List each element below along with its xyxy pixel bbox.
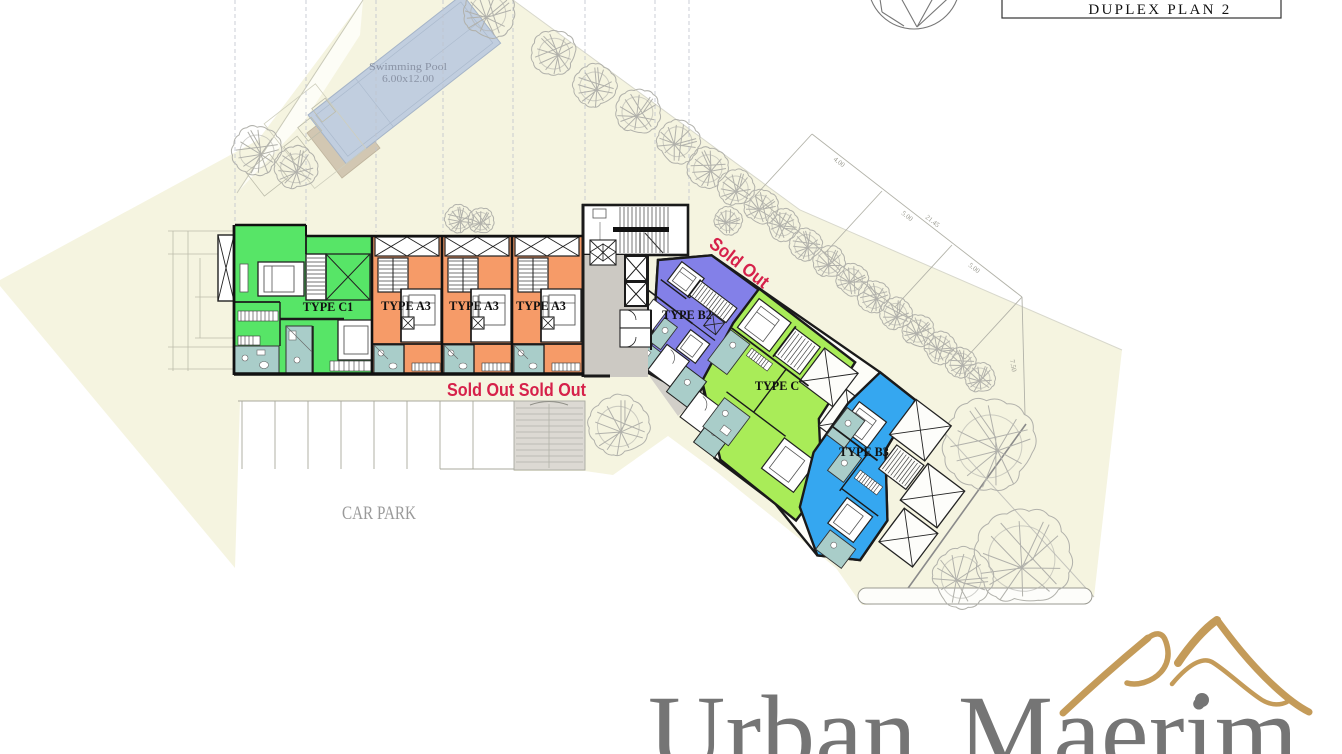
svg-text:Urban Maerim: Urban Maerim xyxy=(648,675,1298,754)
svg-text:4.00: 4.00 xyxy=(832,155,847,169)
svg-text:DUPLEX PLAN 2: DUPLEX PLAN 2 xyxy=(1088,2,1231,18)
svg-text:6.00x12.00: 6.00x12.00 xyxy=(382,74,434,85)
svg-text:TYPE C: TYPE C xyxy=(755,379,799,393)
svg-text:Swimming Pool: Swimming Pool xyxy=(369,61,447,73)
svg-text:TYPE A3: TYPE A3 xyxy=(516,299,566,313)
svg-text:TYPE A3: TYPE A3 xyxy=(449,299,499,313)
svg-text:TYPE B2: TYPE B2 xyxy=(662,308,712,322)
svg-text:TYPE A3: TYPE A3 xyxy=(381,299,431,313)
svg-text:5.00: 5.00 xyxy=(900,209,915,223)
svg-text:TYPE C1: TYPE C1 xyxy=(303,300,353,314)
svg-text:CAR PARK: CAR PARK xyxy=(342,503,416,524)
svg-text:Sold Out Sold Out: Sold Out Sold Out xyxy=(447,379,586,400)
svg-text:5.00: 5.00 xyxy=(967,261,982,275)
svg-text:TYPE B3: TYPE B3 xyxy=(839,445,889,459)
